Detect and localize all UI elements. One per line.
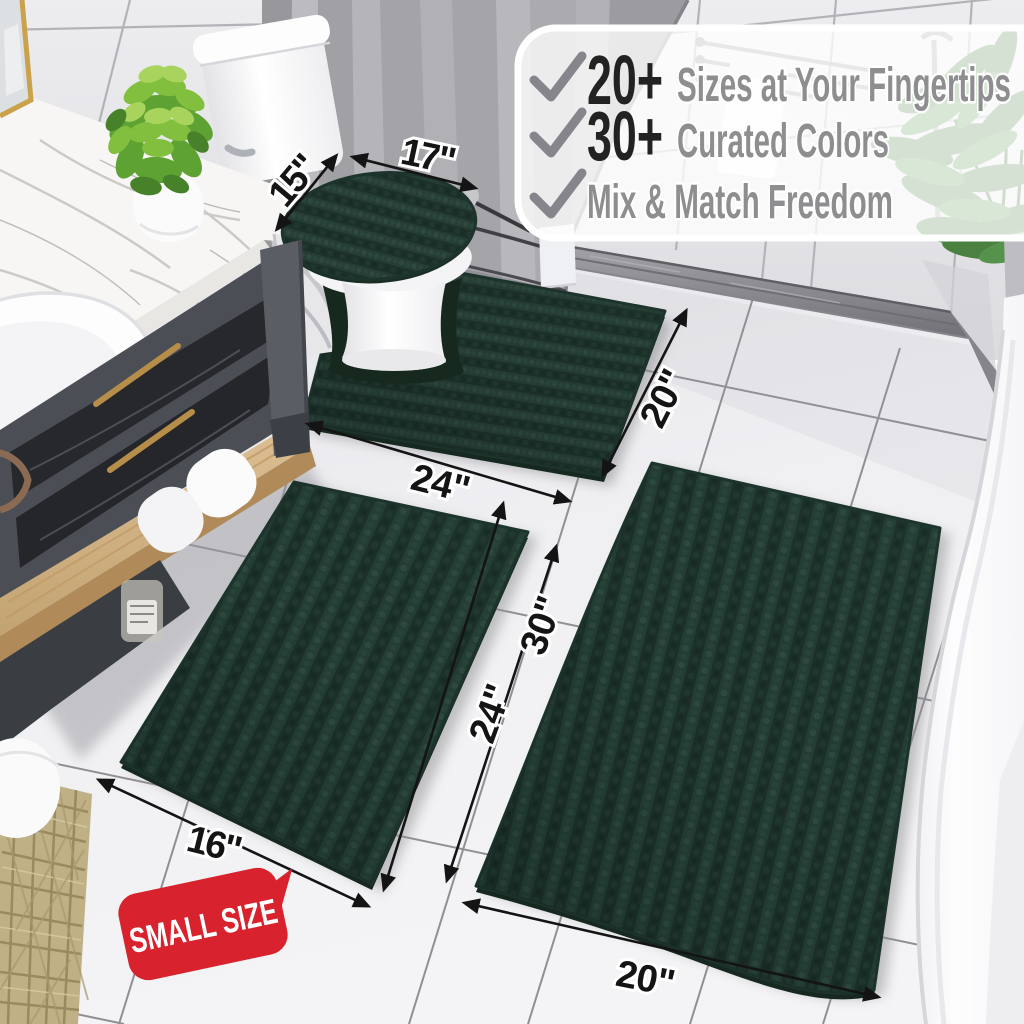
svg-text:Mix & Match Freedom: Mix & Match Freedom: [587, 176, 893, 229]
svg-text:30+: 30+: [587, 97, 663, 175]
svg-text:Sizes at Your Fingertips: Sizes at Your Fingertips: [677, 59, 1011, 112]
svg-text:Curated Colors: Curated Colors: [677, 115, 889, 168]
